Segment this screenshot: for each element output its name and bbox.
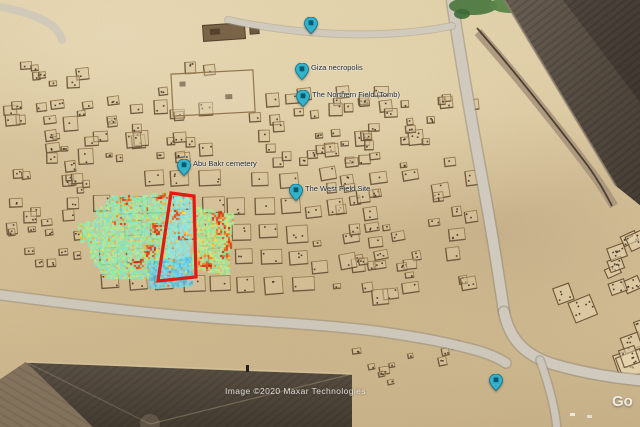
map-pin-4[interactable]: The West Field Site <box>289 184 303 201</box>
pin-label: Giza necropolis <box>311 64 363 72</box>
map-pin-0[interactable] <box>304 17 318 34</box>
pin-label: Abu Bakr cemetery <box>193 160 257 168</box>
pin-label: The Northern Field (Tomb) <box>312 91 400 99</box>
earth-view: Giza necropolis The Northern Field (Tomb… <box>0 0 640 427</box>
map-pin-3[interactable]: Abu Bakr cemetery <box>177 159 191 176</box>
placemark-icon <box>177 159 191 176</box>
map-pins: Giza necropolis The Northern Field (Tomb… <box>0 0 640 427</box>
placemark-icon <box>295 63 309 80</box>
google-watermark: Go <box>612 393 633 410</box>
map-pin-1[interactable]: Giza necropolis <box>295 63 309 80</box>
placemark-icon <box>304 17 318 34</box>
placemark-icon <box>296 90 310 107</box>
pin-label: The West Field Site <box>305 185 370 193</box>
placemark-icon <box>289 184 303 201</box>
imagery-attribution: Image ©2020 Maxar Technologies <box>225 386 366 396</box>
map-pin-2[interactable]: The Northern Field (Tomb) <box>296 90 310 107</box>
map-pin-5[interactable] <box>489 374 503 391</box>
placemark-icon <box>489 374 503 391</box>
